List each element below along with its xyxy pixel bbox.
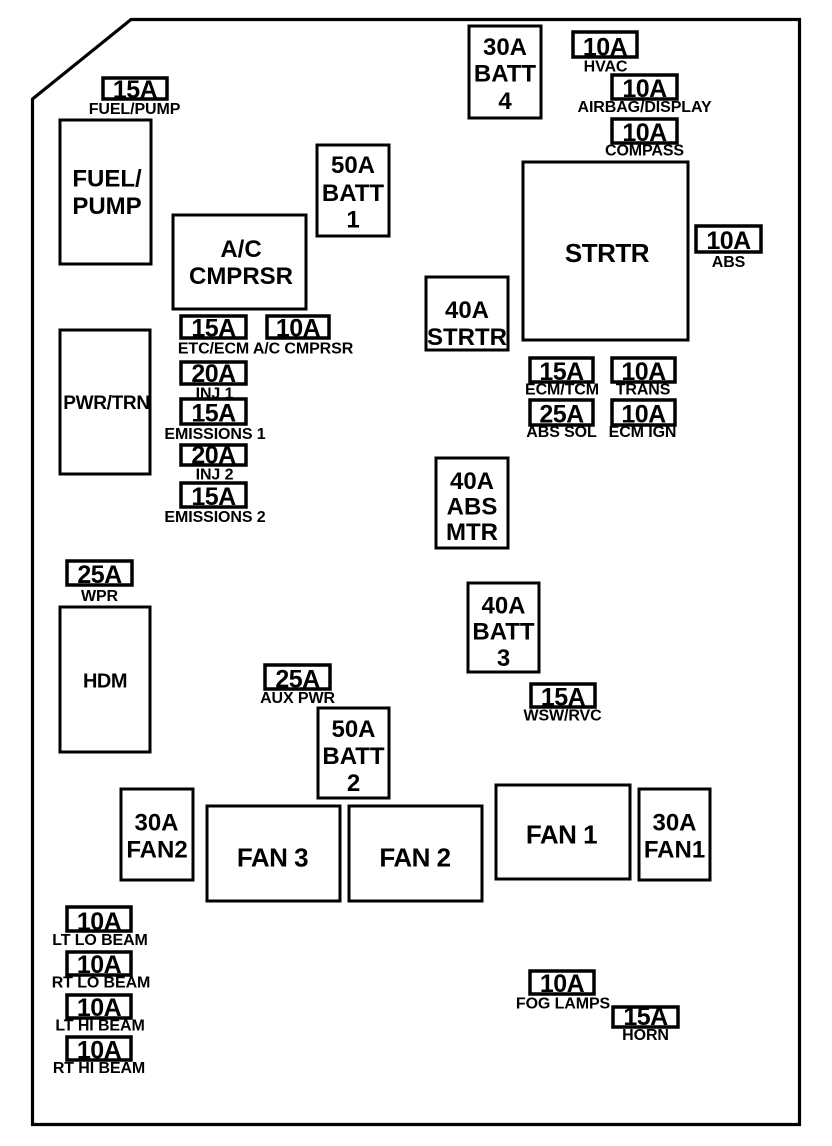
svg-text:TRANS: TRANS — [616, 382, 671, 399]
svg-text:2: 2 — [347, 770, 360, 797]
svg-text:HVAC: HVAC — [584, 59, 628, 76]
svg-text:PUMP: PUMP — [72, 193, 141, 220]
svg-text:15A: 15A — [191, 483, 236, 511]
svg-text:FUEL/PUMP: FUEL/PUMP — [89, 101, 181, 118]
svg-text:A/C: A/C — [220, 236, 261, 263]
svg-text:BATT: BATT — [472, 619, 535, 646]
svg-text:15A: 15A — [113, 76, 158, 104]
svg-text:25A: 25A — [77, 561, 122, 589]
svg-text:FAN 2: FAN 2 — [379, 843, 450, 873]
svg-text:4: 4 — [498, 88, 512, 115]
svg-text:ETC/ECM: ETC/ECM — [178, 341, 249, 358]
svg-text:WSW/RVC: WSW/RVC — [523, 708, 602, 725]
svg-text:RT LO BEAM: RT LO BEAM — [52, 975, 151, 992]
svg-text:RT HI BEAM: RT HI BEAM — [53, 1060, 145, 1077]
svg-text:LT LO BEAM: LT LO BEAM — [52, 932, 148, 949]
svg-text:50A: 50A — [331, 152, 375, 179]
svg-text:CMPRSR: CMPRSR — [189, 263, 293, 290]
svg-text:WPR: WPR — [81, 588, 119, 605]
svg-text:10A: 10A — [540, 970, 585, 998]
svg-text:30A: 30A — [134, 810, 178, 837]
svg-text:30A: 30A — [483, 34, 527, 61]
svg-text:20A: 20A — [191, 442, 236, 470]
svg-text:FAN 3: FAN 3 — [237, 843, 308, 873]
svg-text:FUEL/: FUEL/ — [72, 166, 142, 193]
svg-text:BATT: BATT — [322, 180, 385, 207]
svg-text:STRTR: STRTR — [565, 238, 650, 268]
svg-text:AIRBAG/DISPLAY: AIRBAG/DISPLAY — [577, 99, 711, 116]
svg-text:50A: 50A — [331, 716, 375, 743]
svg-text:ABS: ABS — [447, 494, 498, 521]
svg-text:40A: 40A — [450, 468, 494, 495]
svg-text:PWR/TRN: PWR/TRN — [63, 393, 150, 414]
svg-text:10A: 10A — [276, 315, 321, 343]
svg-text:1: 1 — [346, 207, 359, 234]
svg-text:BATT: BATT — [474, 61, 537, 88]
svg-text:HDM: HDM — [83, 671, 127, 693]
svg-text:10A: 10A — [583, 34, 628, 62]
svg-text:ECM/TCM: ECM/TCM — [525, 382, 599, 399]
svg-text:40A: 40A — [481, 593, 525, 620]
svg-text:15A: 15A — [191, 400, 236, 428]
svg-text:ABS: ABS — [712, 254, 746, 271]
svg-text:ABS SOL: ABS SOL — [526, 424, 597, 441]
svg-text:30A: 30A — [652, 810, 696, 837]
svg-text:A/C CMPRSR: A/C CMPRSR — [253, 341, 354, 358]
svg-text:20A: 20A — [191, 360, 236, 388]
svg-text:40A: 40A — [445, 297, 489, 324]
svg-text:MTR: MTR — [446, 519, 498, 546]
svg-text:15A: 15A — [191, 315, 236, 343]
svg-text:FAN 1: FAN 1 — [526, 820, 597, 850]
svg-text:STRTR: STRTR — [427, 324, 507, 351]
svg-text:BATT: BATT — [322, 743, 385, 770]
svg-text:ECM IGN: ECM IGN — [609, 424, 677, 441]
svg-text:FAN2: FAN2 — [126, 837, 187, 864]
svg-text:EMISSIONS 1: EMISSIONS 1 — [164, 426, 265, 443]
svg-text:3: 3 — [497, 645, 510, 672]
svg-text:FAN1: FAN1 — [644, 837, 705, 864]
svg-text:EMISSIONS 2: EMISSIONS 2 — [164, 509, 265, 526]
svg-text:COMPASS: COMPASS — [605, 143, 684, 160]
svg-text:FOG LAMPS: FOG LAMPS — [516, 996, 611, 1013]
svg-text:AUX PWR: AUX PWR — [260, 690, 335, 707]
svg-text:INJ 2: INJ 2 — [196, 467, 234, 484]
svg-text:10A: 10A — [706, 227, 751, 255]
svg-text:HORN: HORN — [622, 1027, 669, 1044]
svg-text:LT HI BEAM: LT HI BEAM — [55, 1018, 144, 1035]
